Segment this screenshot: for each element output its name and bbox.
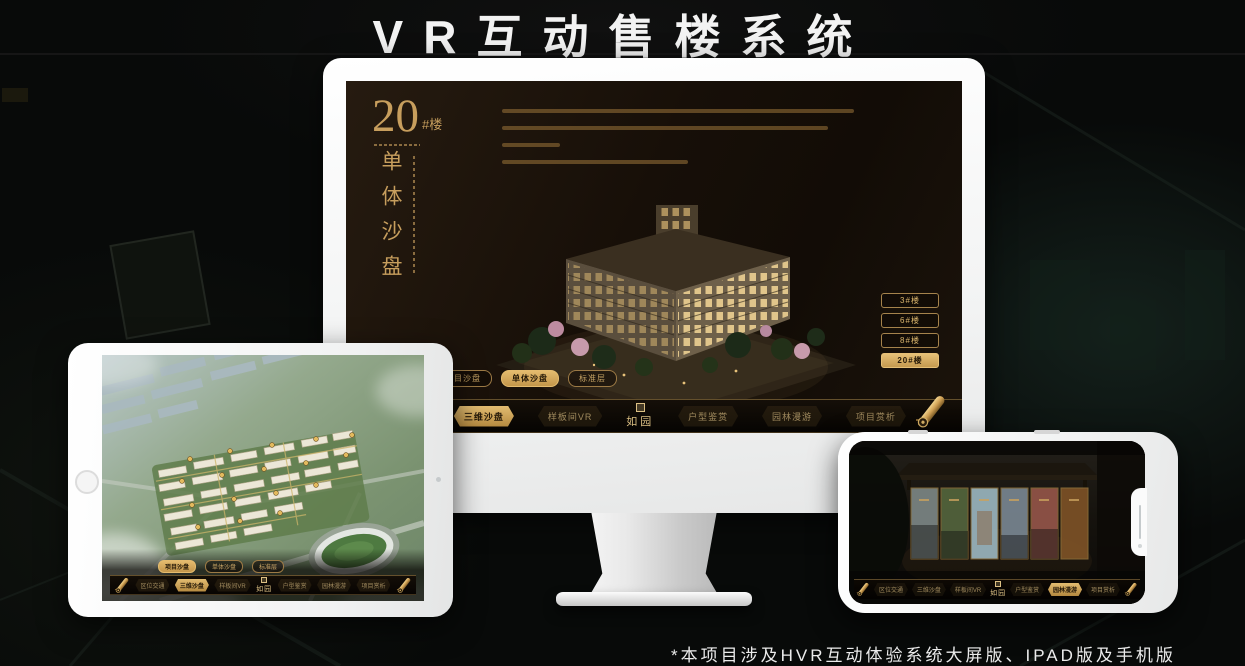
building-headline: 20 #楼 单体沙盘 xyxy=(372,93,442,320)
scroll-icon[interactable] xyxy=(856,581,870,598)
page: VR互动售楼系统 20 #楼 单体沙盘 xyxy=(0,0,1245,666)
building-number: 20 xyxy=(372,93,419,140)
home-button[interactable] xyxy=(75,470,99,494)
nav-item-project-gallery[interactable]: 项目赏析 xyxy=(356,579,390,592)
tab-standard-floor[interactable]: 标准层 xyxy=(252,560,284,573)
nav-item-floorplans[interactable]: 户型鉴赏 xyxy=(278,579,312,592)
floor-button-20[interactable]: 20#楼 xyxy=(881,353,939,368)
tablet-screen: 项目沙盘 单体沙盘 标准层 区位交通 三维沙盘 样板间VR 如园 户型鉴赏 园林… xyxy=(102,355,424,601)
speaker-slit-icon xyxy=(1139,505,1141,539)
nav-item-project-gallery[interactable]: 项目赏析 xyxy=(1086,583,1120,596)
scroll-icon[interactable] xyxy=(1124,581,1138,598)
tab-single-sandbox[interactable]: 单体沙盘 xyxy=(501,370,559,387)
nav-item-garden-roam[interactable]: 园林漫游 xyxy=(1048,583,1082,596)
tab-project-sandbox[interactable]: 项目沙盘 xyxy=(158,560,196,573)
headline-vertical-rule xyxy=(413,156,415,276)
phone-screen: 区位交通 三维沙盘 样板间VR 如园 户型鉴赏 园林漫游 项目赏析 xyxy=(849,441,1145,604)
floor-button-8[interactable]: 8#楼 xyxy=(881,333,939,348)
tablet-navbar: 区位交通 三维沙盘 样板间VR 如园 户型鉴赏 园林漫游 项目赏析 xyxy=(110,575,416,595)
floor-button-group: 3#楼 6#楼 8#楼 20#楼 xyxy=(881,293,939,368)
camera-icon xyxy=(436,477,441,482)
front-camera-icon xyxy=(1138,544,1142,548)
nav-item-location[interactable]: 区位交通 xyxy=(135,579,169,592)
building-number-unit: #楼 xyxy=(422,114,442,133)
floor-button-6[interactable]: 6#楼 xyxy=(881,313,939,328)
nav-item-showroom-vr[interactable]: 样板间VR xyxy=(950,583,986,596)
nav-item-showroom-vr[interactable]: 样板间VR xyxy=(214,579,250,592)
nav-item-floorplans[interactable]: 户型鉴赏 xyxy=(678,406,738,427)
scroll-icon[interactable] xyxy=(114,576,130,595)
nav-item-garden-roam[interactable]: 园林漫游 xyxy=(762,406,822,427)
nav-item-floorplans[interactable]: 户型鉴赏 xyxy=(1010,583,1044,596)
headline-rule xyxy=(374,144,420,146)
nav-item-3d-sandbox[interactable]: 三维沙盘 xyxy=(175,579,209,592)
phone-navbar: 区位交通 三维沙盘 样板间VR 如园 户型鉴赏 园林漫游 项目赏析 xyxy=(854,579,1140,599)
footnote: *本项目涉及HVR互动体验系统大屏版、IPAD版及手机版 xyxy=(671,641,1176,666)
view-tab-group: 项目沙盘 单体沙盘 标准层 xyxy=(434,370,617,387)
power-button[interactable] xyxy=(1034,430,1060,434)
nav-item-project-gallery[interactable]: 项目赏析 xyxy=(846,406,906,427)
volume-button[interactable] xyxy=(908,430,928,434)
building-3d-scene[interactable] xyxy=(484,141,868,431)
headline-vertical-title: 单体沙盘 xyxy=(376,150,406,320)
seal-icon xyxy=(995,581,1001,587)
monitor-stand-base xyxy=(556,592,752,606)
floor-button-3[interactable]: 3#楼 xyxy=(881,293,939,308)
nav-item-location[interactable]: 区位交通 xyxy=(874,583,908,596)
brand-logo: 如园 xyxy=(990,581,1006,598)
scroll-icon[interactable] xyxy=(914,392,948,432)
tab-single-sandbox[interactable]: 单体沙盘 xyxy=(205,560,243,573)
scroll-icon[interactable] xyxy=(396,576,412,595)
tab-standard-floor[interactable]: 标准层 xyxy=(568,370,617,387)
brand-logo: 如园 xyxy=(626,403,654,429)
monitor-stand xyxy=(586,513,722,597)
tablet-view-tab-group: 项目沙盘 单体沙盘 标准层 xyxy=(158,560,284,573)
tablet-device: 项目沙盘 单体沙盘 标准层 区位交通 三维沙盘 样板间VR 如园 户型鉴赏 园林… xyxy=(68,343,453,617)
seal-icon xyxy=(636,403,645,412)
nav-item-3d-sandbox[interactable]: 三维沙盘 xyxy=(454,406,514,427)
nav-item-garden-roam[interactable]: 园林漫游 xyxy=(317,579,351,592)
nav-item-3d-sandbox[interactable]: 三维沙盘 xyxy=(912,583,946,596)
nav-item-showroom-vr[interactable]: 样板间VR xyxy=(538,406,603,427)
seal-icon xyxy=(261,577,267,583)
phone-device: 区位交通 三维沙盘 样板间VR 如园 户型鉴赏 园林漫游 项目赏析 xyxy=(838,432,1178,613)
brand-logo: 如园 xyxy=(256,577,272,594)
